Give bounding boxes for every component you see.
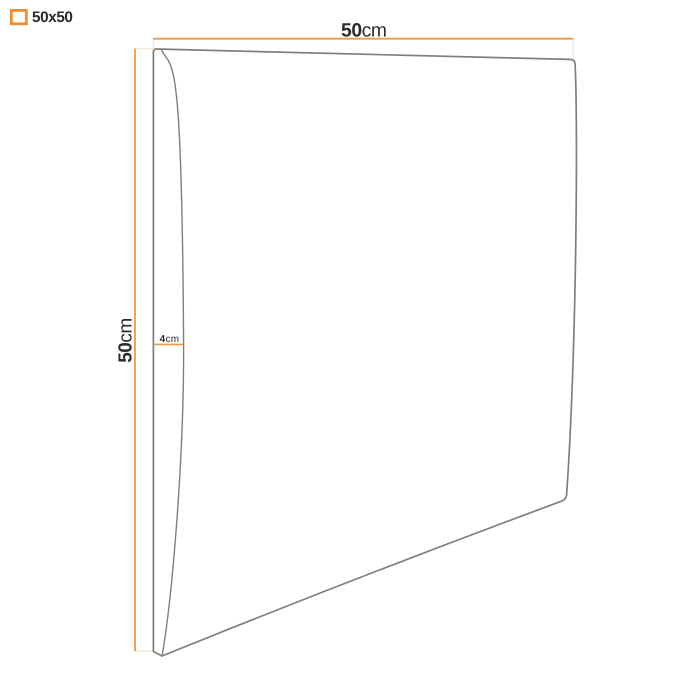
svg-text:50cm: 50cm [341, 21, 387, 42]
svg-text:50cm: 50cm [116, 318, 137, 362]
svg-text:4cm: 4cm [160, 334, 180, 345]
svg-text:50x50: 50x50 [32, 9, 73, 26]
